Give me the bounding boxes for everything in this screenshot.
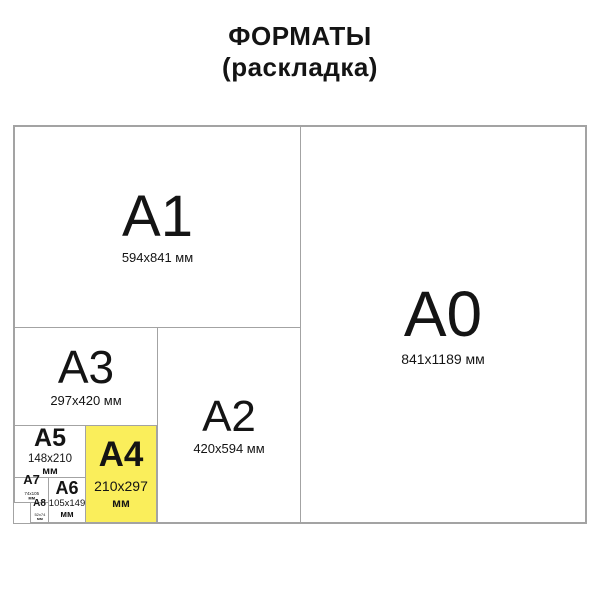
format-label-a6: A6	[55, 480, 78, 498]
format-unit-a4: мм	[112, 497, 130, 510]
format-dims-a3: 297x420 мм	[50, 394, 121, 408]
format-label-a8: A8	[33, 499, 46, 509]
format-box-a0: A0 841x1189 мм	[300, 126, 586, 523]
format-dims-a0: 841x1189 мм	[401, 352, 485, 367]
format-size-a4: 210x297	[94, 479, 148, 494]
format-label-a0: A0	[404, 283, 482, 346]
format-box-a1: A1 594x841 мм	[14, 126, 301, 328]
format-unit-a5: мм	[42, 466, 58, 477]
title-line-1: ФОРМАТЫ	[0, 21, 600, 52]
format-label-a5: A5	[34, 426, 66, 451]
title-line-2: (раскладка)	[0, 52, 600, 83]
format-label-a1: A1	[122, 189, 193, 246]
page-title: ФОРМАТЫ (раскладка)	[0, 21, 600, 83]
format-size-a5: 148x210	[28, 453, 72, 465]
format-unit-a6: мм	[60, 510, 73, 519]
format-unit-a8: мм	[34, 517, 45, 521]
format-box-a6: A6 105x149 мм	[48, 477, 86, 523]
paper-formats-diagram: A1 594x841 мм A0 841x1189 мм A3 297x420 …	[13, 125, 587, 524]
format-dims-a1: 594x841 мм	[122, 251, 193, 265]
format-box-a5: A5 148x210 мм	[14, 425, 86, 478]
format-label-a2: A2	[202, 395, 256, 438]
format-size-a6: 105x149	[49, 499, 85, 509]
format-box-a4-highlighted: A4 210x297 мм	[85, 425, 157, 523]
format-dims-a2: 420x594 мм	[193, 442, 264, 456]
format-box-a2: A2 420x594 мм	[157, 327, 301, 523]
format-label-a7: A7	[23, 474, 40, 487]
format-label-a4: A4	[99, 438, 144, 472]
format-box-a8: A8 52x74 мм	[30, 502, 49, 523]
format-label-a3: A3	[58, 345, 114, 390]
format-box-a3: A3 297x420 мм	[14, 327, 158, 426]
